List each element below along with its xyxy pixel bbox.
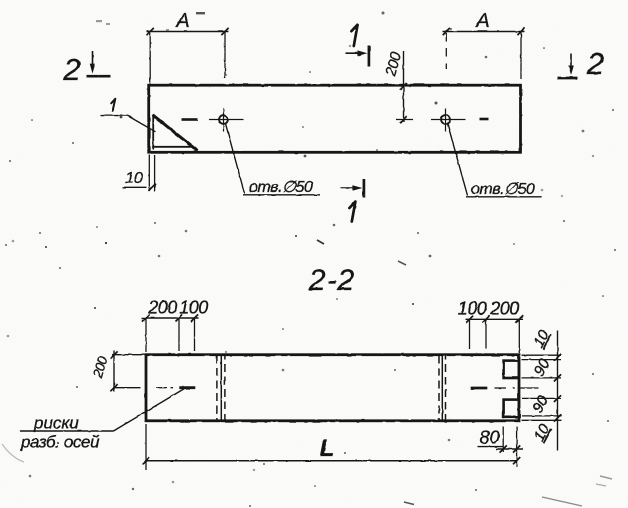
svg-text:10: 10 [125, 170, 143, 187]
svg-text:разб. осей: разб. осей [20, 433, 100, 452]
svg-text:2: 2 [62, 52, 80, 87]
svg-text:80: 80 [479, 428, 499, 448]
svg-text:L: L [320, 435, 335, 462]
svg-text:отв.∅50: отв.∅50 [249, 179, 313, 196]
svg-text:А: А [175, 10, 189, 32]
svg-text:100: 100 [179, 298, 208, 318]
svg-text:А: А [475, 10, 489, 32]
svg-text:отв.∅50: отв.∅50 [471, 181, 535, 198]
svg-text:200: 200 [147, 298, 177, 318]
svg-text:100: 100 [458, 299, 487, 319]
svg-text:2: 2 [586, 46, 604, 81]
svg-text:200: 200 [489, 299, 519, 319]
svg-text:2-2: 2-2 [308, 264, 355, 297]
svg-text:риски: риски [33, 414, 79, 433]
